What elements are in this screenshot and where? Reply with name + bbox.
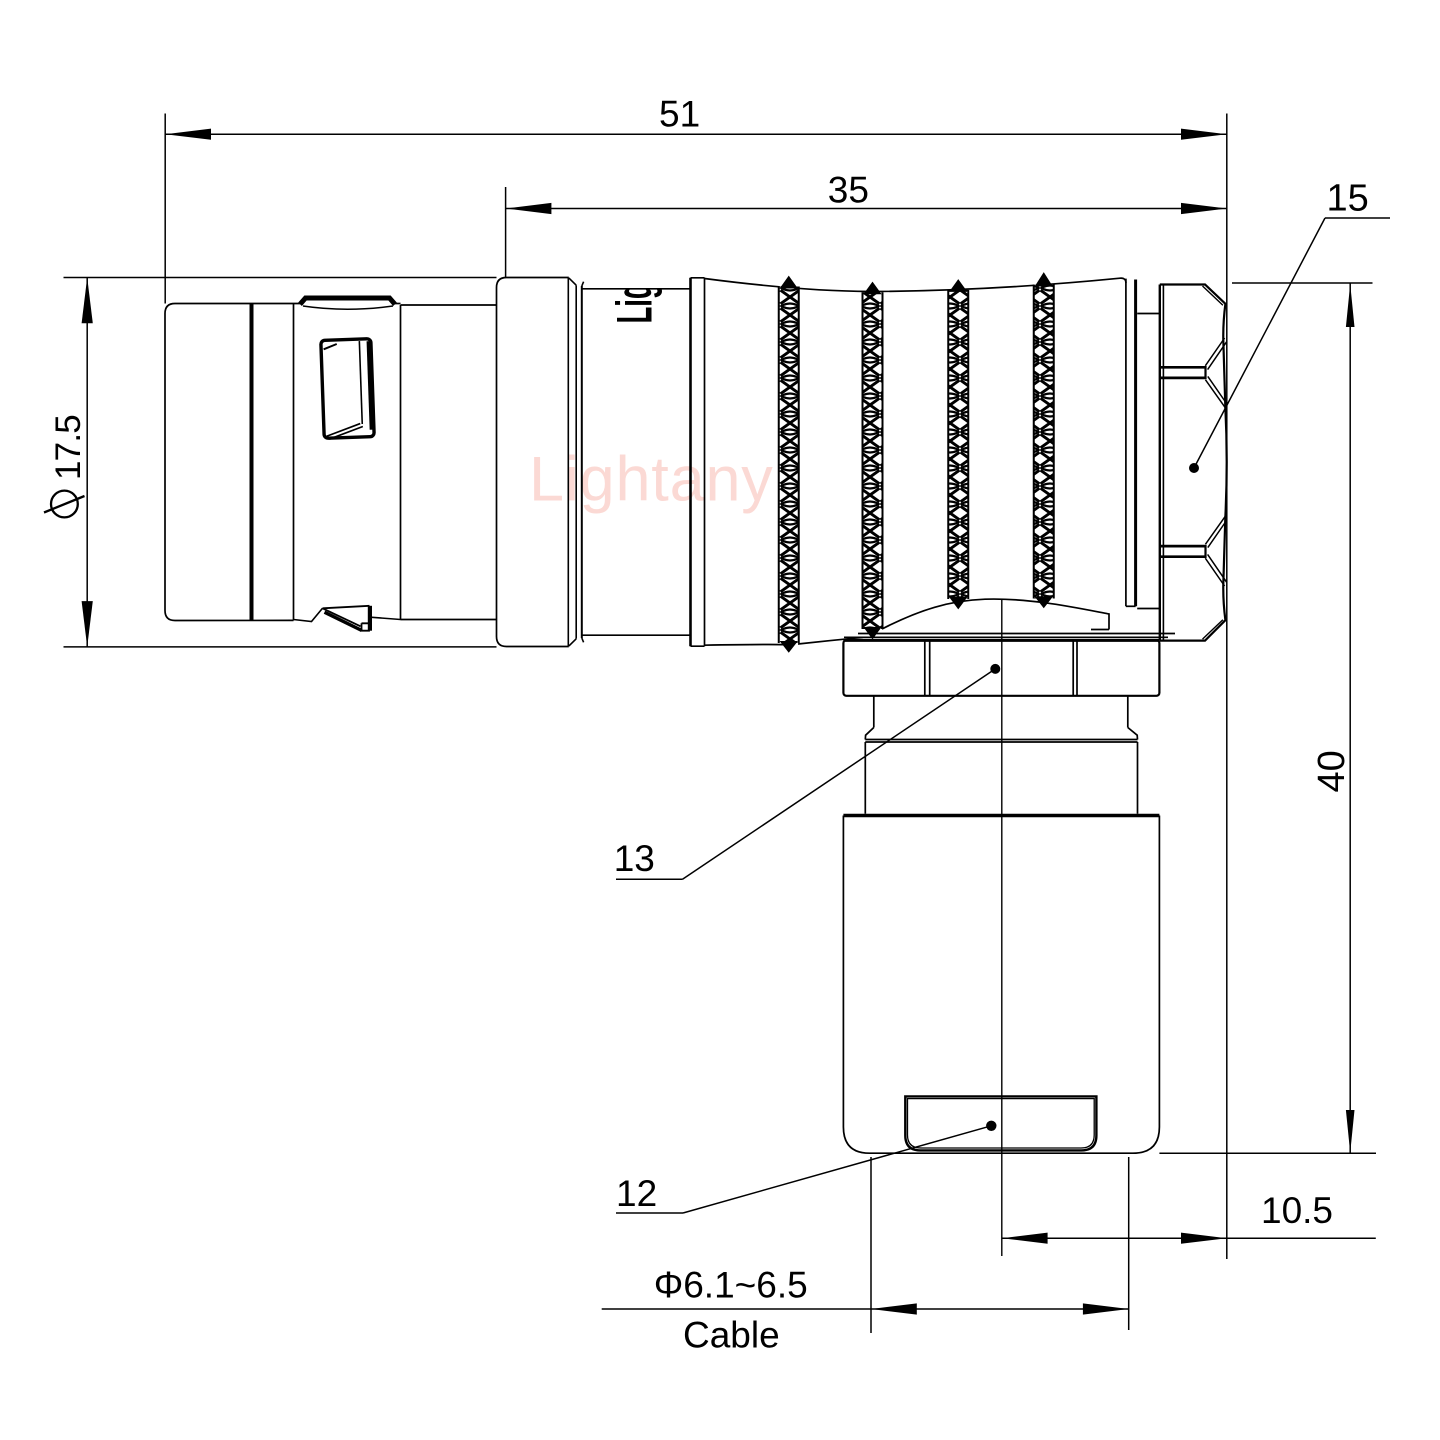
svg-text:40: 40 — [1311, 750, 1353, 792]
svg-text:Lightany: Lightany — [529, 445, 774, 515]
svg-text:10.5: 10.5 — [1261, 1190, 1333, 1231]
svg-text:51: 51 — [659, 94, 700, 135]
svg-text:Φ6.1~6.5: Φ6.1~6.5 — [654, 1265, 808, 1306]
svg-text:Cable: Cable — [683, 1315, 780, 1356]
svg-text:13: 13 — [614, 838, 655, 879]
svg-text:12: 12 — [616, 1173, 657, 1214]
svg-text:15: 15 — [1327, 178, 1369, 220]
svg-text:17.5: 17.5 — [49, 415, 88, 480]
svg-text:35: 35 — [828, 169, 869, 210]
